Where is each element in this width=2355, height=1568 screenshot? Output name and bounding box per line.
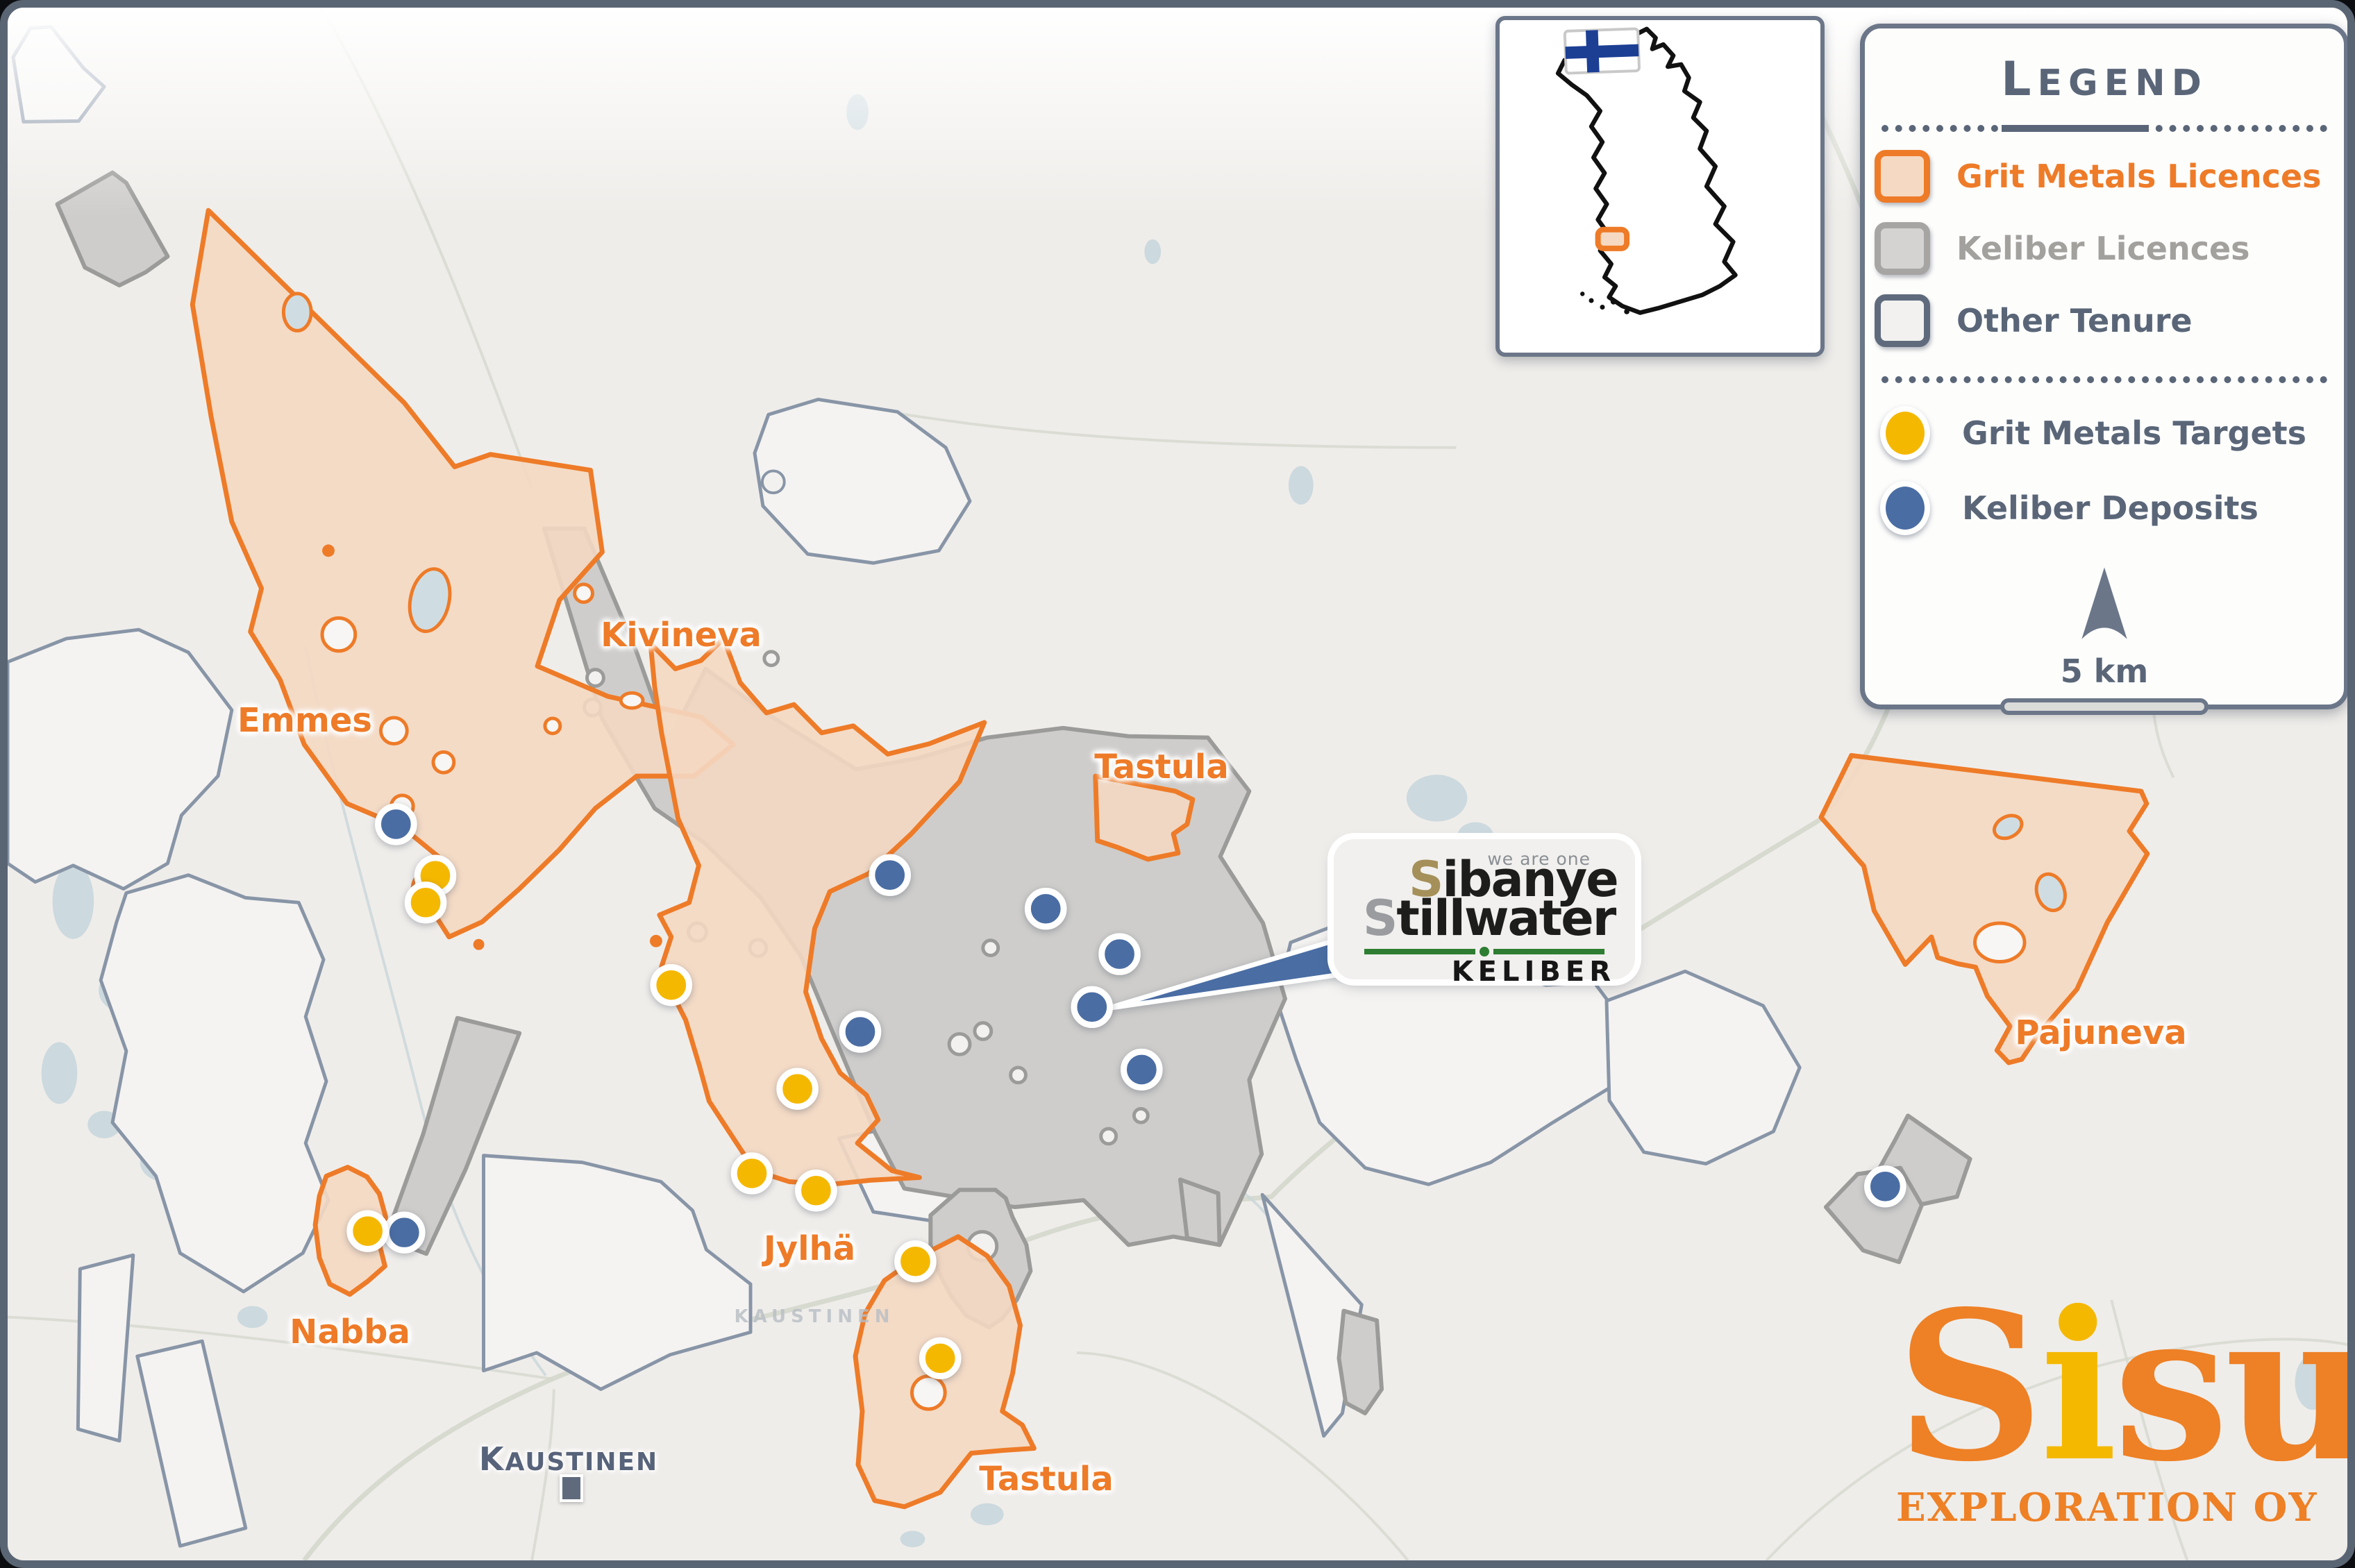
region-label-tastula: Tastula (1094, 748, 1228, 786)
grit-target-marker (798, 1172, 835, 1208)
keliber-deposit-marker (1868, 1169, 1904, 1204)
target-dot-icon (1880, 406, 1930, 460)
finland-outline-map (1500, 20, 1820, 353)
map-frame: KAUSTINEN EmmesKivinevaTastulaJylhäNabba… (0, 0, 2355, 1568)
keliber-deposit-marker (1028, 891, 1064, 926)
town-marker (560, 1474, 583, 1502)
deposit-dot-icon (1880, 481, 1930, 535)
grit-target-marker (653, 967, 689, 1002)
keliber-deposit-marker (842, 1014, 878, 1049)
legend-item-keliber-licences: Keliber Licences (1875, 221, 2344, 276)
town-label: Kaustinen (479, 1440, 658, 1478)
legend-title: Legend (1865, 52, 2344, 107)
region-label-pajuneva: Pajuneva (2015, 1013, 2186, 1052)
sisu-logo: Sisu EXPLORATION OY (1896, 1300, 2299, 1531)
sisu-wordmark: Sisu (1896, 1300, 2299, 1474)
grit-target-marker (780, 1071, 816, 1106)
region-label-kivineva: Kivineva (601, 616, 762, 655)
sibanye-callout-box: we are one Sibanye Stillwater KELIBER (1334, 839, 1635, 979)
finland-flag-icon (1565, 28, 1639, 73)
keliber-licence-swatch (1875, 222, 1930, 275)
grit-target-marker (922, 1340, 958, 1376)
sisu-accent-letter: i (2040, 1266, 2113, 1507)
grit-target-marker (408, 885, 444, 920)
grit-target-marker (898, 1243, 934, 1279)
sibanye-brand-bottom: Stillwater (1363, 896, 1615, 941)
keliber-deposit-marker (1124, 1052, 1160, 1087)
region-label-nabba: Nabba (290, 1313, 410, 1351)
basemap-watermark: KAUSTINEN (735, 1306, 895, 1327)
screenshot: KAUSTINEN EmmesKivinevaTastulaJylhäNabba… (0, 0, 2355, 1568)
keliber-deposit-marker (378, 807, 414, 842)
legend-item-grit-licences: Grit Metals Licences (1875, 149, 2344, 204)
sibanye-green-rule (1364, 949, 1604, 954)
keliber-deposit-marker (1102, 936, 1138, 972)
keliber-deposit-marker (872, 857, 908, 893)
sisu-subtitle: EXPLORATION OY (1896, 1485, 2299, 1531)
other-tenure-swatch (1875, 294, 1930, 347)
region-label-jylhä: Jylhä (764, 1229, 855, 1268)
legend-separator (1882, 125, 2327, 132)
legend-panel: Legend Grit Metals Licences Keliber Lice… (1860, 24, 2349, 709)
keliber-deposit-marker (386, 1215, 422, 1250)
grit-licence-swatch (1875, 150, 1930, 203)
legend-item-other-tenure: Other Tenure (1875, 293, 2344, 348)
inset-area-highlight (1598, 230, 1627, 248)
legend-item-grit-targets: Grit Metals Targets (1880, 408, 2344, 458)
region-label-tastula: Tastula (979, 1460, 1113, 1499)
finland-inset (1495, 16, 1825, 357)
region-label-emmes: Emmes (237, 701, 372, 740)
scale-label: 5 km (1865, 652, 2344, 690)
grit-target-marker (734, 1156, 770, 1191)
legend-separator-2 (1882, 376, 2327, 383)
grit-target-marker (350, 1213, 386, 1249)
keliber-deposit-marker (1074, 989, 1110, 1025)
keliber-wordmark: KELIBER (1334, 956, 1616, 988)
north-arrow-icon (2075, 561, 2134, 647)
legend-item-keliber-deposits: Keliber Deposits (1880, 483, 2344, 533)
licence-emmes (192, 210, 733, 937)
scale-bar (2000, 698, 2209, 715)
